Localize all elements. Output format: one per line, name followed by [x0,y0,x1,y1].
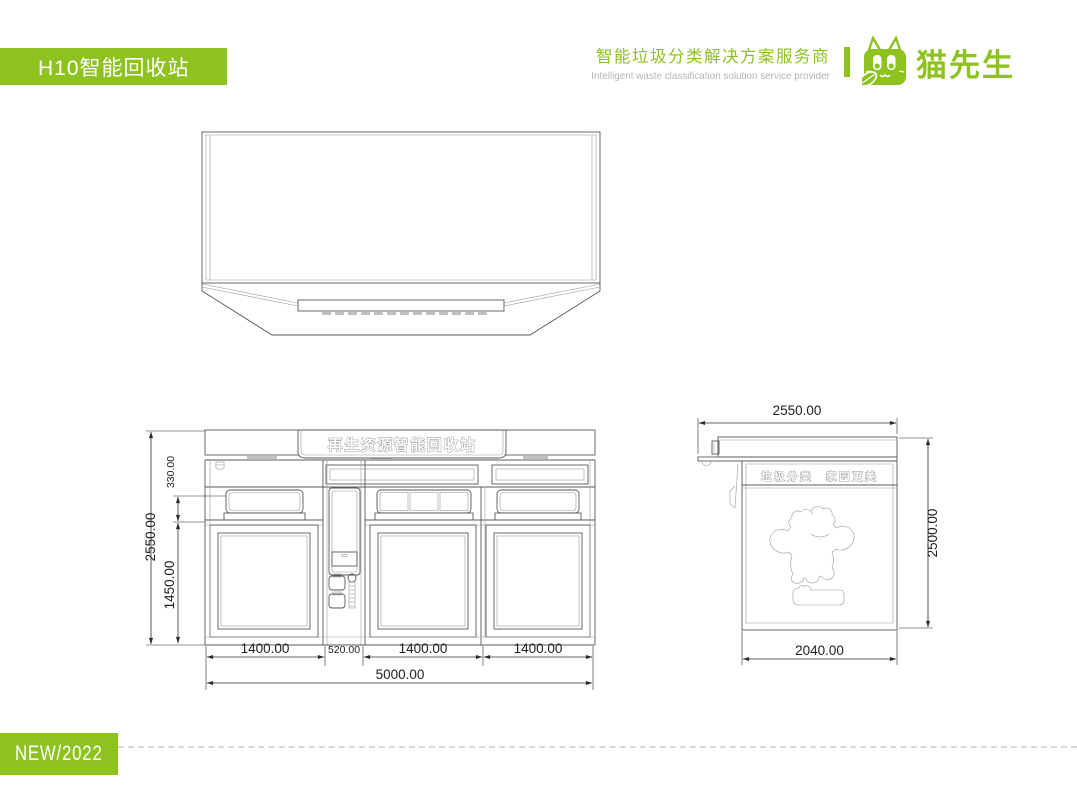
model-title-banner: H10智能回收站 [0,48,227,85]
console-slot-1 [329,576,345,590]
door-middle [370,525,476,637]
camera-dome [216,465,225,470]
brand-cutout-outline [793,585,844,605]
hopper-flap-left [226,490,303,513]
door-right [486,525,590,637]
tagline-cn: 智能垃圾分类解决方案服务商 [576,43,830,67]
side-body: 垃圾分类 家园更美 [730,461,897,630]
new-badge-label: NEW/2022 [15,742,103,766]
console-slot-2 [329,594,345,608]
dim-side-roof-depth: 2550.00 [773,403,822,418]
front-view-drawing: 再生资源智能回收站 [140,424,605,692]
front-console [329,488,360,608]
mascot-outline [770,507,854,584]
front-hoppers [205,490,595,525]
console-screen [329,488,360,575]
taglines: 智能垃圾分类解决方案服务商 Intelligent waste classifi… [576,43,830,82]
dim-front-overall-height: 2550.00 [143,513,158,562]
side-dimensions: 2550.00 2500.00 2040.00 [698,403,940,665]
light-box-middle [326,465,478,484]
brand-logo: 猫先生 [862,36,1015,88]
dim-front-hopper-height: 330.00 [165,456,177,488]
top-view-sign-dashes [322,312,487,315]
model-title: H10智能回收站 [0,52,190,82]
side-hook [702,461,711,465]
dim-front-width-1: 1400.00 [241,641,290,656]
top-view-sign-strip [298,300,504,311]
header-right: 智能垃圾分类解决方案服务商 Intelligent waste classifi… [576,36,1015,88]
brand-wordmark: 猫先生 [916,40,1015,85]
page: H10智能回收站 智能垃圾分类解决方案服务商 Intelligent waste… [0,0,1077,793]
dim-front-width-3: 1400.00 [399,641,448,656]
side-view-drawing: 垃圾分类 家园更美 2550.00 2500.00 2040.00 [685,398,940,670]
top-view-drawing [197,107,603,339]
front-upper-band [205,462,595,487]
dim-front-door-height: 1450.00 [162,561,177,610]
door-left [210,525,318,637]
front-doors [210,525,590,637]
dim-side-body-depth: 2040.00 [795,643,844,658]
tagline-en: Intelligent waste classification solutio… [591,70,830,82]
dashed-separator [118,746,1077,748]
new-badge: NEW/2022 [0,733,118,775]
brand-divider [844,47,850,77]
dim-side-overall-height: 2500.00 [925,509,940,558]
light-box-right [492,465,588,484]
top-view-canopy [202,283,600,335]
dim-front-width-2: 520.00 [328,644,360,656]
front-dimensions: 2550.00 330.00 1450.00 1400.00 520.00 14… [143,431,593,690]
dim-front-overall-width: 5000.00 [376,667,425,682]
front-sign-text: 再生资源智能回收站 [328,436,477,454]
front-frame [205,460,595,645]
side-band-text: 垃圾分类 家园更美 [761,470,878,483]
hopper-flap-middle [377,490,471,513]
cat-logo-icon [862,36,908,88]
hopper-flap-right [497,490,579,513]
dim-front-width-4: 1400.00 [514,641,563,656]
top-view-roof [202,132,600,283]
front-canopy: 再生资源智能回收站 [205,430,595,460]
